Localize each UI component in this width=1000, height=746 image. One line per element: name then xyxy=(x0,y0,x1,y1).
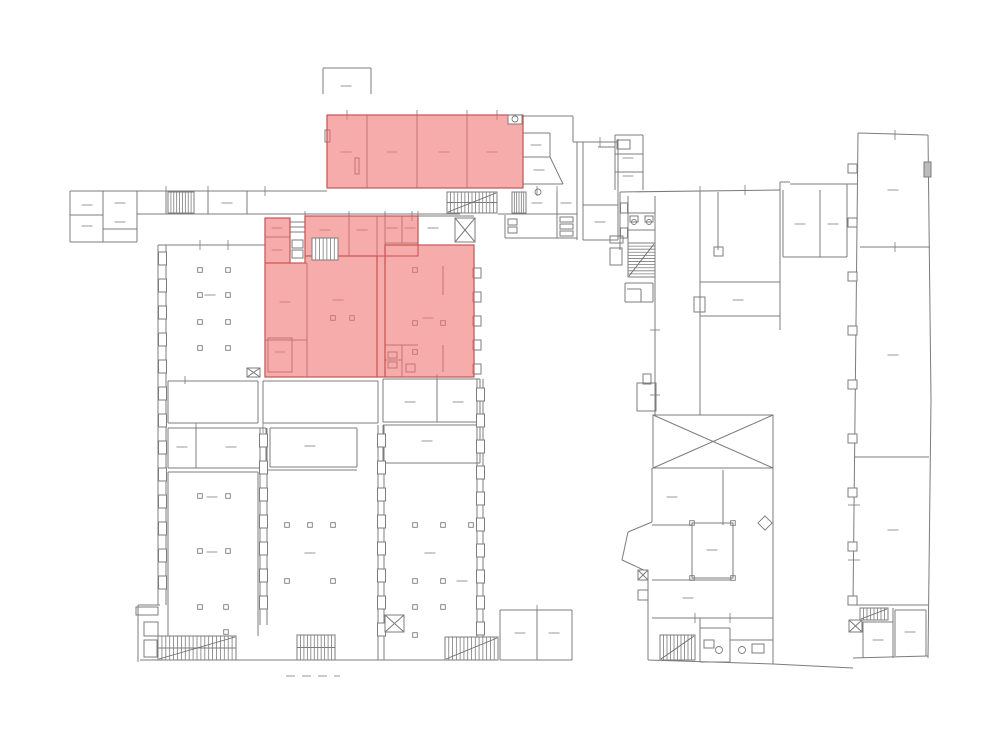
floorplan-page xyxy=(0,0,1000,746)
fixtures-layer xyxy=(136,130,931,657)
highlight-layer xyxy=(265,115,523,377)
floorplan-drawing xyxy=(0,0,1000,746)
highlighted-area-north-block[interactable] xyxy=(327,115,523,188)
